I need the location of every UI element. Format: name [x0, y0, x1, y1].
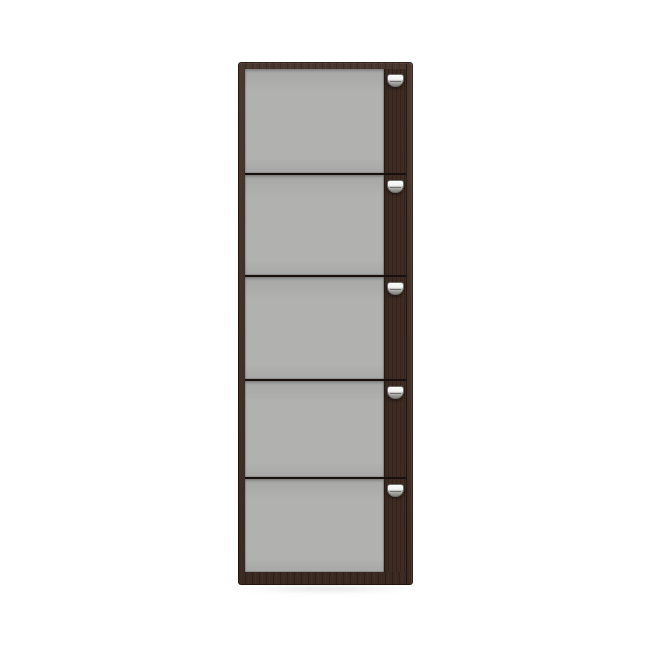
product-image [0, 0, 650, 650]
floor-shadow [236, 585, 416, 593]
door-cup-handle-icon [387, 386, 404, 399]
handle-slot [390, 289, 401, 290]
door-wood-stile [384, 175, 406, 275]
cabinet-door-3 [245, 277, 406, 379]
door-cup-handle-icon [387, 74, 404, 87]
handle-slot [390, 187, 401, 188]
cabinet-door-4 [245, 381, 406, 477]
cabinet-door-5 [245, 479, 406, 572]
handle-slot [390, 81, 401, 82]
door-wood-stile [384, 479, 406, 572]
cabinet-door-2 [245, 175, 406, 275]
doors [245, 69, 406, 572]
door-panel [245, 69, 384, 173]
door-wood-stile [384, 277, 406, 379]
door-panel [245, 277, 384, 379]
handle-slot [390, 491, 401, 492]
door-panel [245, 175, 384, 275]
door-cup-handle-icon [387, 180, 404, 193]
door-cup-handle-icon [387, 484, 404, 497]
cabinet [238, 62, 413, 585]
cabinet-right-seam [406, 64, 407, 583]
cabinet-door-1 [245, 69, 406, 173]
door-wood-stile [384, 381, 406, 477]
door-panel [245, 381, 384, 477]
door-wood-stile [384, 69, 406, 173]
door-panel [245, 479, 384, 572]
handle-slot [390, 393, 401, 394]
door-cup-handle-icon [387, 282, 404, 295]
